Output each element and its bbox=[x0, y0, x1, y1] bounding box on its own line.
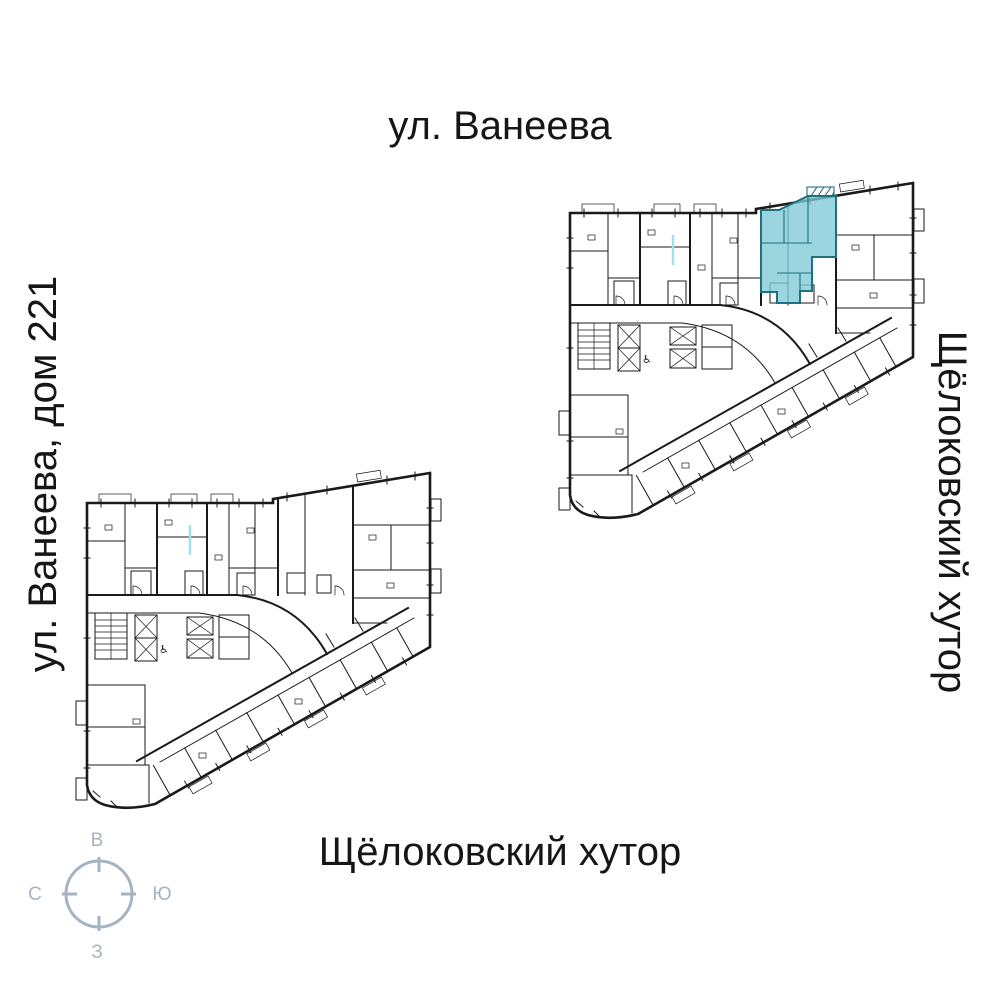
compass-south-label: Ю bbox=[152, 884, 171, 905]
floor-plan-lower bbox=[76, 470, 441, 807]
compass-east-label: В bbox=[91, 830, 104, 851]
site-plan-page: ул. Ванеева ул. Ванеева, дом 221 Щёлоков… bbox=[0, 0, 1000, 1000]
compass-rose: В Ю З С bbox=[14, 806, 184, 976]
compass-west-label: З bbox=[91, 942, 102, 963]
floor-plan-upper bbox=[559, 180, 924, 517]
compass-north-label: С bbox=[28, 884, 42, 905]
compass-ticks bbox=[62, 857, 136, 931]
